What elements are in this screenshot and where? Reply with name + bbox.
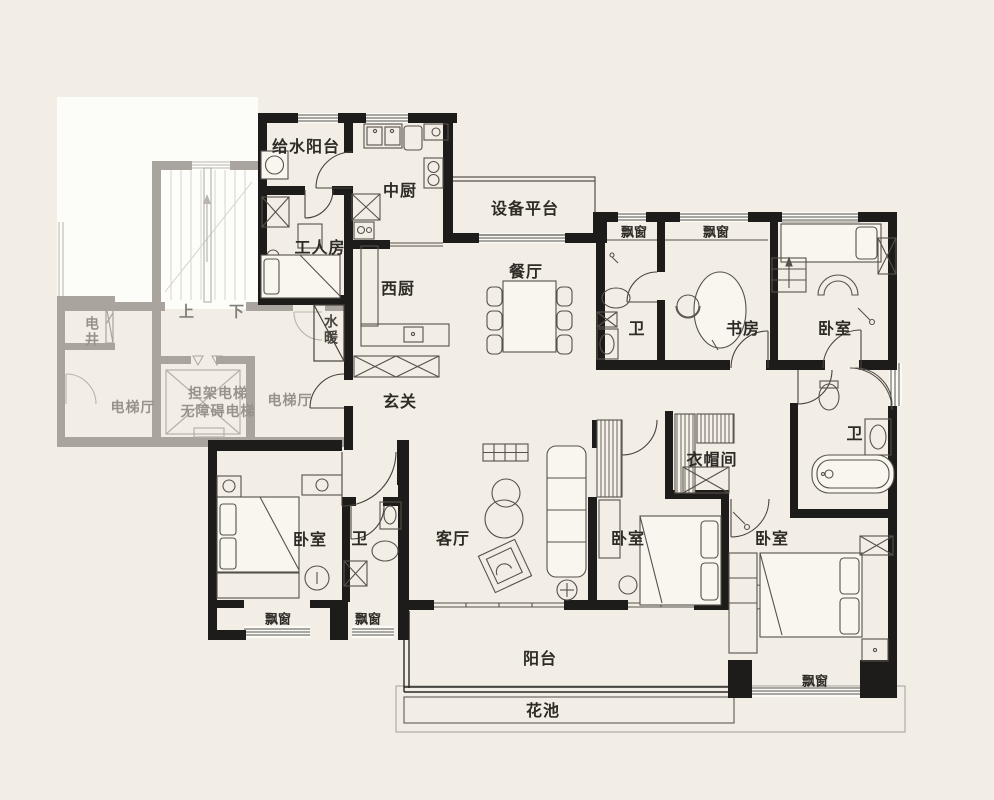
dining-table (487, 281, 572, 354)
core-label-stretcher-elevator: 担架电梯 (188, 383, 248, 403)
core-label-stairs-up: 上 (179, 301, 195, 322)
core-label-stairs-down: 下 (229, 301, 245, 322)
room-label-bay-window-top-1: 飘窗 (621, 222, 647, 241)
foyer-cabinet (354, 356, 439, 377)
room-label-balcony: 阳台 (523, 645, 557, 669)
core-label-elevator-hall-left: 电梯厅 (111, 397, 156, 417)
room-label-equipment-platform: 设备平台 (491, 195, 559, 219)
room-label-bay-window-bottom-1: 飘窗 (265, 609, 291, 628)
bedroom-tr-furniture (772, 224, 896, 325)
room-label-worker-room: 工人房 (294, 234, 345, 258)
room-label-plumbing-shaft: 水暖 (320, 314, 340, 346)
room-label-bath-top: 卫 (628, 315, 645, 339)
room-label-chinese-kitchen: 中厨 (383, 177, 417, 201)
room-label-bedroom-bottom-right: 卧室 (755, 525, 789, 549)
room-label-bedroom-bottom-left: 卧室 (293, 526, 327, 550)
core-label-electrical-shaft: 电井 (81, 316, 101, 348)
room-label-bath-right: 卫 (846, 420, 863, 444)
living-room-furniture (478, 444, 586, 600)
room-label-walk-in-closet: 衣帽间 (686, 446, 737, 470)
room-label-bedroom-bottom-middle: 卧室 (611, 525, 645, 549)
floor-plan-canvas: 给水阳台 中厨 设备平台 工人房 西厨 餐厅 飘窗 飘窗 卫 书房 卧室 玄关 … (0, 0, 994, 800)
room-label-dining-room: 餐厅 (509, 258, 543, 282)
room-label-bedroom-top-right: 卧室 (818, 315, 852, 339)
room-label-bath-bottom-left: 卫 (351, 525, 368, 549)
flower-bed-box (404, 697, 734, 723)
core-label-accessible-elevator: 无障碍电梯 (181, 401, 256, 421)
room-label-living-room: 客厅 (436, 525, 470, 549)
room-label-bay-window-bottom-2: 飘窗 (355, 609, 381, 628)
room-label-western-kitchen: 西厨 (381, 275, 415, 299)
core-label-elevator-hall-right: 电梯厅 (268, 390, 313, 410)
room-label-flower-bed: 花池 (526, 697, 560, 721)
bedroom-br-furniture (729, 512, 893, 661)
room-label-foyer: 玄关 (383, 388, 417, 412)
room-label-bay-window-top-2: 飘窗 (703, 222, 729, 241)
room-label-bay-window-bottom-right: 飘窗 (802, 671, 828, 690)
room-label-water-supply-balcony: 给水阳台 (272, 133, 340, 157)
room-label-study: 书房 (726, 315, 760, 339)
